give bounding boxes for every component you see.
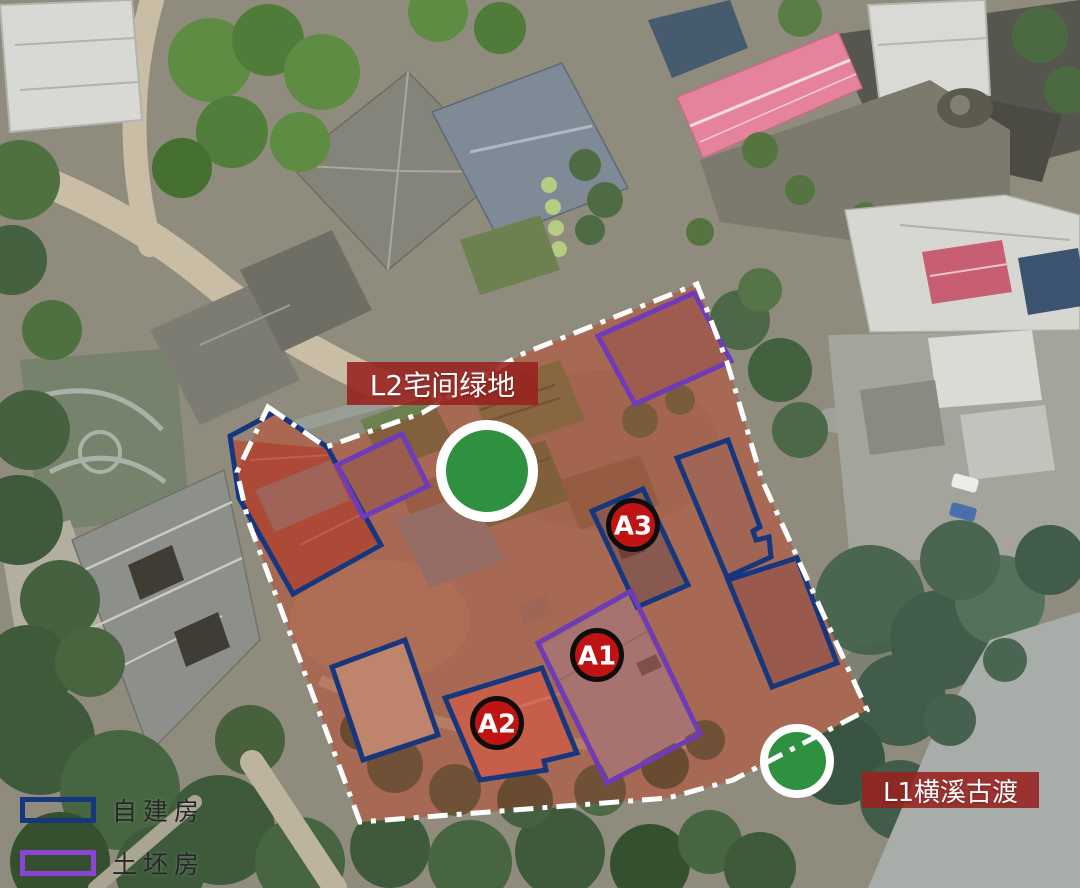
legend-swatch-adobe-houses [20, 850, 96, 876]
legend-item-adobe: 土坯房 [20, 845, 205, 881]
legend-label-adobe-houses: 土坯房 [112, 845, 205, 881]
legend-label-self-built-houses: 自建房 [112, 792, 205, 828]
site-plan-figure: A1A2A3 L2宅间绿地 L1横溪古渡 自建房 土坯房 [0, 0, 1080, 888]
marker-label-a2: A2 [478, 709, 516, 739]
legend-swatch-self-built-houses [20, 797, 96, 823]
green-node-large [441, 425, 533, 517]
annotation-overlay: A1A2A3 [0, 0, 1080, 888]
legend: 自建房 土坯房 [20, 792, 205, 881]
area-label-l1: L1横溪古渡 [862, 772, 1039, 808]
marker-label-a1: A1 [578, 641, 616, 671]
marker-label-a3: A3 [614, 511, 652, 541]
legend-item-self-built: 自建房 [20, 792, 205, 828]
area-label-l2: L2宅间绿地 [347, 362, 538, 405]
